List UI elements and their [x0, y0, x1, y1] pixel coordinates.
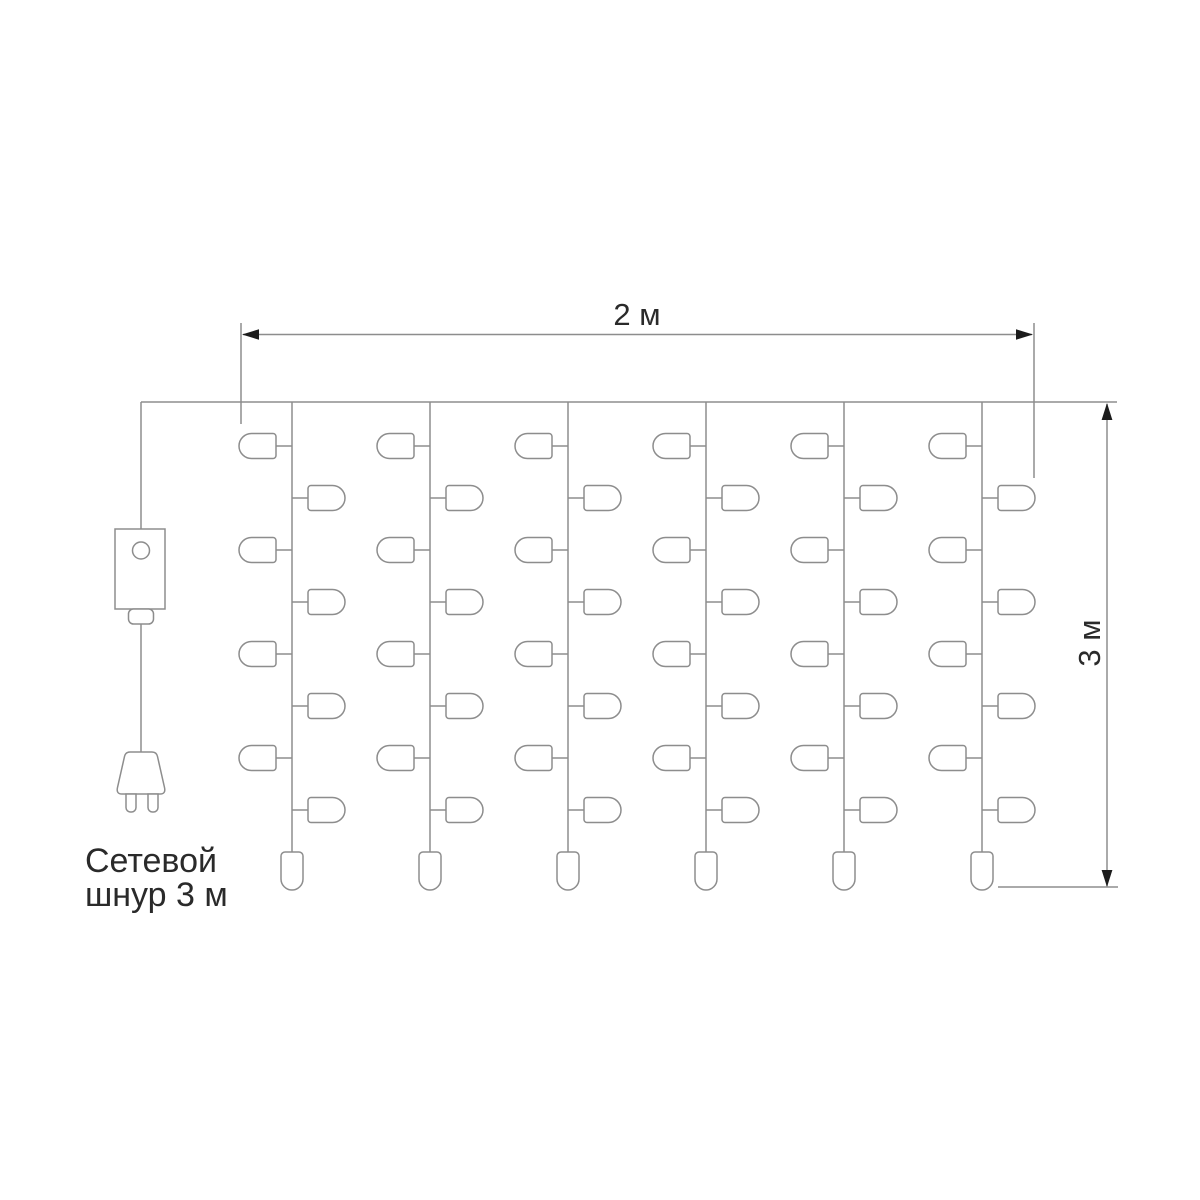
led-bulb-left-icon — [239, 746, 276, 771]
led-bulb-right-icon — [584, 486, 621, 511]
led-bulb-end-icon — [971, 852, 993, 890]
led-bulb-left-icon — [653, 538, 690, 563]
led-bulb-left-icon — [653, 746, 690, 771]
led-bulb-right-icon — [584, 798, 621, 823]
adapter-button-icon — [133, 542, 150, 559]
led-bulb-left-icon — [377, 746, 414, 771]
led-bulb-left-icon — [515, 434, 552, 459]
led-bulb-right-icon — [446, 798, 483, 823]
adapter-box — [115, 529, 165, 609]
led-bulb-right-icon — [308, 798, 345, 823]
led-bulb-left-icon — [791, 434, 828, 459]
led-strand — [791, 402, 897, 890]
led-bulb-left-icon — [929, 642, 966, 667]
led-bulb-right-icon — [860, 486, 897, 511]
led-strand — [239, 402, 345, 890]
plug-body-icon — [117, 752, 165, 794]
led-bulb-left-icon — [515, 746, 552, 771]
curtain-lights-diagram: 2 м 3 м Сетевой шнур 3 м — [0, 0, 1200, 1200]
led-bulb-left-icon — [377, 434, 414, 459]
led-bulb-left-icon — [239, 538, 276, 563]
led-bulb-left-icon — [929, 538, 966, 563]
led-bulb-left-icon — [929, 746, 966, 771]
arrow-left-icon — [242, 329, 259, 340]
led-bulb-end-icon — [419, 852, 441, 890]
led-bulb-left-icon — [791, 746, 828, 771]
led-bulb-end-icon — [557, 852, 579, 890]
led-bulb-left-icon — [377, 642, 414, 667]
led-strands — [239, 402, 1035, 890]
led-bulb-right-icon — [584, 694, 621, 719]
led-strand — [653, 402, 759, 890]
led-bulb-right-icon — [308, 486, 345, 511]
led-strand — [515, 402, 621, 890]
led-bulb-left-icon — [515, 642, 552, 667]
led-bulb-left-icon — [791, 642, 828, 667]
led-bulb-right-icon — [308, 590, 345, 615]
adapter-connector — [129, 609, 154, 624]
led-bulb-left-icon — [239, 434, 276, 459]
led-bulb-right-icon — [860, 798, 897, 823]
led-bulb-right-icon — [860, 694, 897, 719]
led-bulb-left-icon — [653, 642, 690, 667]
height-dimension-label: 3 м — [1072, 619, 1107, 666]
arrow-down-icon — [1102, 870, 1113, 887]
cord-caption-line2: шнур 3 м — [85, 876, 228, 914]
led-bulb-right-icon — [722, 694, 759, 719]
led-bulb-right-icon — [860, 590, 897, 615]
led-bulb-end-icon — [281, 852, 303, 890]
led-bulb-end-icon — [695, 852, 717, 890]
arrow-right-icon — [1016, 329, 1033, 340]
led-bulb-right-icon — [446, 694, 483, 719]
led-bulb-left-icon — [377, 538, 414, 563]
arrow-up-icon — [1102, 403, 1113, 420]
led-bulb-right-icon — [446, 486, 483, 511]
led-bulb-right-icon — [998, 694, 1035, 719]
led-bulb-right-icon — [722, 590, 759, 615]
led-bulb-right-icon — [998, 590, 1035, 615]
cord-caption-line1: Сетевой — [85, 842, 217, 880]
led-strand — [377, 402, 483, 890]
led-bulb-right-icon — [998, 798, 1035, 823]
led-bulb-right-icon — [584, 590, 621, 615]
power-cord — [117, 624, 165, 812]
led-bulb-right-icon — [446, 590, 483, 615]
plug-prong-left-icon — [126, 794, 136, 812]
led-bulb-right-icon — [722, 798, 759, 823]
width-dimension-label: 2 м — [613, 297, 660, 332]
led-bulb-right-icon — [722, 486, 759, 511]
led-bulb-left-icon — [791, 538, 828, 563]
led-bulb-left-icon — [239, 642, 276, 667]
led-bulb-right-icon — [308, 694, 345, 719]
led-bulb-left-icon — [653, 434, 690, 459]
cord-caption: Сетевой шнур 3 м — [85, 842, 228, 914]
power-adapter — [115, 402, 165, 624]
width-dimension: 2 м — [241, 297, 1034, 478]
led-bulb-right-icon — [998, 486, 1035, 511]
led-bulb-end-icon — [833, 852, 855, 890]
led-bulb-left-icon — [515, 538, 552, 563]
led-bulb-left-icon — [929, 434, 966, 459]
plug-prong-right-icon — [148, 794, 158, 812]
led-strand — [929, 402, 1035, 890]
